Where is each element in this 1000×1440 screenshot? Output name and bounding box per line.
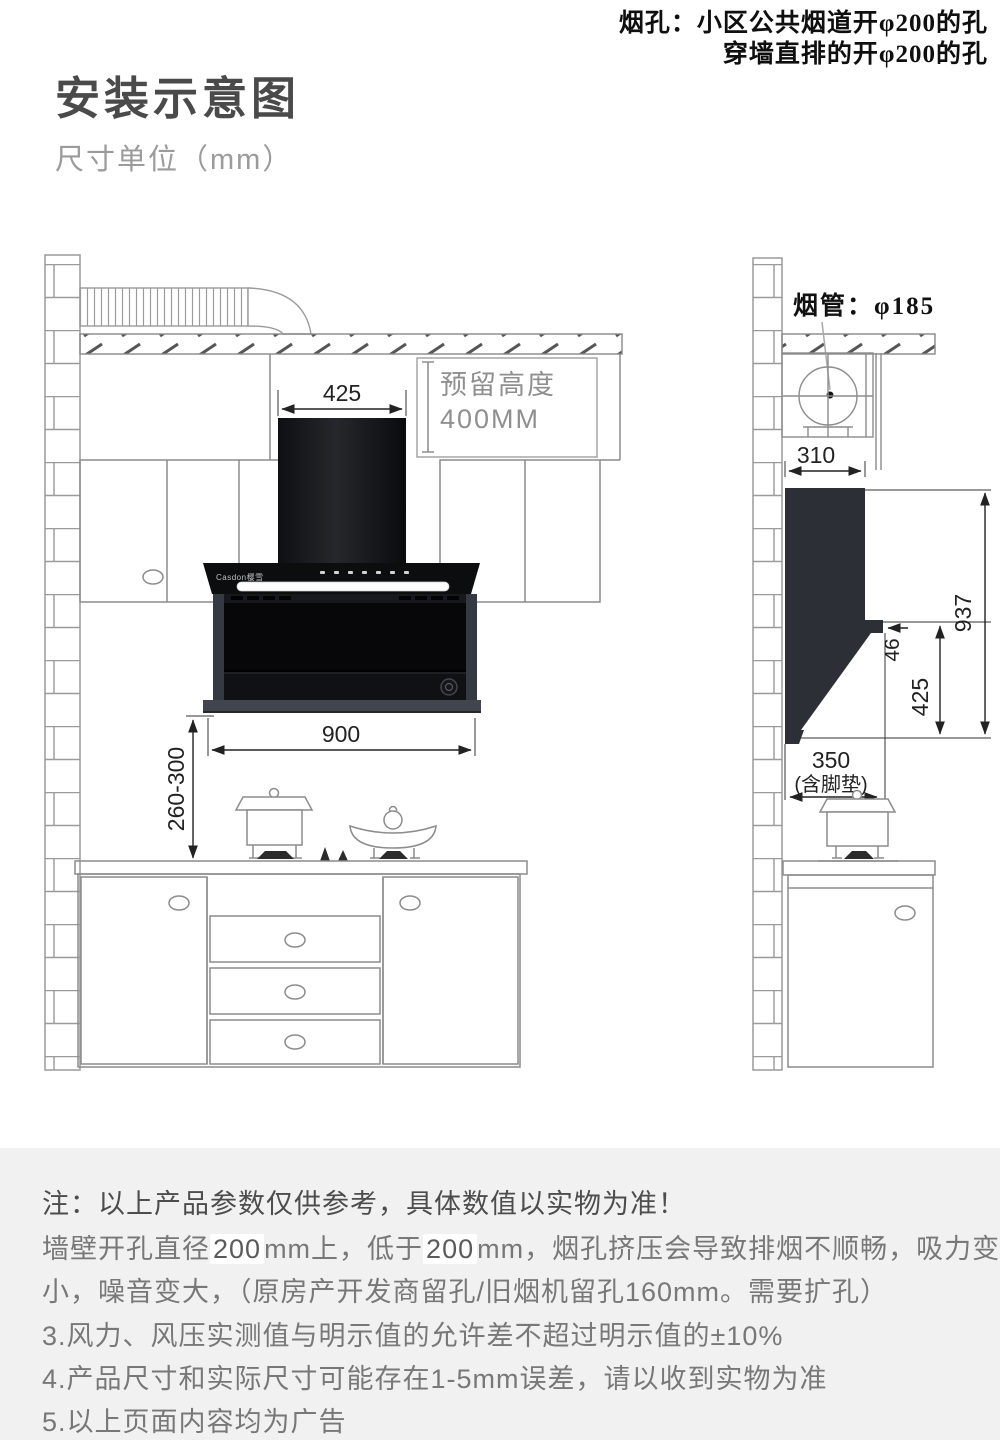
front-lower-cabinets <box>75 861 527 1067</box>
side-cookware <box>818 791 898 862</box>
note-line-3: 小，噪音变大，（原房产开发商留孔/旧烟机留孔160mm。需要扩孔） <box>42 1270 888 1309</box>
dim-total-height-value: 937 <box>950 594 976 632</box>
hood-side-silhouette <box>785 488 883 730</box>
note-line-6: 5.以上页面内容均为广告 <box>42 1400 347 1439</box>
drawer-2 <box>210 968 380 1014</box>
side-brick-wall <box>753 258 782 1070</box>
dim-install-height-value: 260-300 <box>163 747 189 831</box>
dim-lower-height-value: 425 <box>907 678 933 716</box>
notes-section: 注：以上产品参数仅供参考，具体数值以实物为准！ 墙壁开孔直径200mm上，低于2… <box>0 1148 1000 1440</box>
dim-bottom-depth-value: 350 <box>812 747 850 773</box>
drawer-1 <box>210 916 380 962</box>
lower-cabinet-right-handle <box>400 896 420 910</box>
lower-cabinet-right-door <box>383 877 518 1064</box>
note-line-2-part3: mm，烟孔挤压会导致排烟不顺畅，吸力变 <box>477 1234 1000 1264</box>
dim-bottom-depth: 350 (含脚垫) <box>790 747 877 797</box>
hood-bottom-tray <box>224 674 466 700</box>
front-countertop <box>75 861 527 874</box>
front-cookware <box>236 789 436 862</box>
hood-light-strip <box>237 582 449 591</box>
side-cabinet-handle <box>895 906 915 920</box>
hood-chimney <box>278 418 406 564</box>
dim-top-depth-value: 310 <box>797 442 835 468</box>
note-line-2-highlight2: 200 <box>423 1234 477 1264</box>
note-line-2: 墙壁开孔直径200mm上，低于200mm，烟孔挤压会导致排烟不顺畅，吸力变 <box>42 1227 1000 1266</box>
dim-install-height: 260-300 <box>163 716 214 858</box>
front-exhaust-duct <box>80 288 311 334</box>
dim-lower-height: 425 <box>907 626 940 734</box>
reserved-height-box: 预留高度 400MM <box>417 358 597 457</box>
side-cabinet-box <box>788 875 933 1067</box>
installation-drawing: 预留高度 400MM 425 Casdon樱雪 <box>0 0 1000 1148</box>
dim-lip-depth-value: 46 <box>881 638 904 661</box>
note-line-2-highlight1: 200 <box>210 1234 264 1264</box>
pipe-label: 烟管：φ185 <box>793 291 935 320</box>
reserved-height-label-2: 400MM <box>440 404 540 434</box>
front-ceiling <box>80 334 622 354</box>
dim-hood-width-value: 900 <box>322 721 360 747</box>
side-view: 烟管：φ185 310 <box>753 258 991 1070</box>
reserved-height-label-1: 预留高度 <box>440 370 556 400</box>
dim-chimney-width: 425 <box>278 380 406 416</box>
hood-power-emblem <box>441 679 457 695</box>
note-line-2-part2: mm上，低于 <box>264 1234 423 1264</box>
side-ceiling <box>782 334 935 354</box>
side-countertop <box>783 861 935 875</box>
front-cabinet-box <box>78 874 520 1067</box>
dim-total-height: 937 <box>950 493 985 734</box>
reserved-height-gauge <box>422 362 434 452</box>
drawer-3 <box>210 1020 380 1064</box>
side-lower-cabinet <box>783 861 935 1067</box>
hood-base-strip <box>203 700 481 711</box>
upper-cabinet-left-handle <box>143 570 163 584</box>
hood-glass-panel <box>224 603 466 670</box>
dim-top-depth: 310 <box>785 442 865 477</box>
installation-diagram-page: { "header": { "corner_note_line1": "烟孔：小… <box>0 0 1000 1440</box>
dim-hood-width: 900 <box>208 718 475 756</box>
note-line-4: 3.风力、风压实测值与明示值的允许差不超过明示值的±10% <box>42 1314 783 1353</box>
pipe-leader-line <box>822 322 830 390</box>
note-line-5: 4.产品尺寸和实际尺寸可能存在1-5mm误差，请以收到实物为准 <box>42 1357 828 1396</box>
lower-cabinet-left-handle <box>169 896 189 910</box>
range-hood: Casdon樱雪 <box>203 563 481 712</box>
dim-chimney-width-value: 425 <box>323 380 361 406</box>
hood-brand-logo: Casdon樱雪 <box>216 572 264 582</box>
hood-foot-pad <box>785 730 804 744</box>
front-view: 预留高度 400MM 425 Casdon樱雪 <box>45 255 622 1070</box>
front-brick-wall <box>45 255 80 1070</box>
note-line-2-part1: 墙壁开孔直径 <box>42 1234 210 1264</box>
note-line-1: 注：以上产品参数仅供参考，具体数值以实物为准！ <box>42 1182 686 1221</box>
